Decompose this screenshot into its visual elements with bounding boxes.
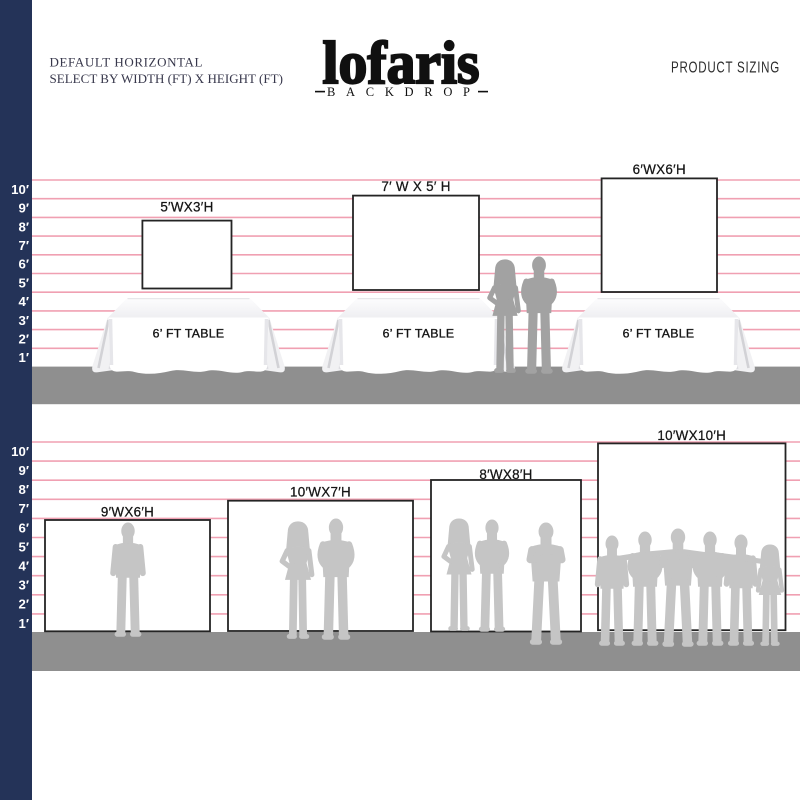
svg-text:SELECT BY WIDTH (FT) X HEIGHT: SELECT BY WIDTH (FT) X HEIGHT (FT) xyxy=(50,71,284,86)
svg-text:DEFAULT HORIZONTAL: DEFAULT HORIZONTAL xyxy=(50,54,204,69)
svg-text:2′: 2′ xyxy=(19,332,30,347)
svg-text:6′: 6′ xyxy=(19,257,30,272)
svg-text:9′: 9′ xyxy=(19,201,30,216)
svg-text:7′ W X 5′ H: 7′ W X 5′ H xyxy=(381,179,450,194)
svg-text:10′: 10′ xyxy=(11,182,29,197)
svg-text:1′: 1′ xyxy=(19,350,30,365)
svg-text:2′: 2′ xyxy=(19,597,30,612)
svg-text:PRODUCT SIZING: PRODUCT SIZING xyxy=(671,60,780,77)
svg-text:9′: 9′ xyxy=(19,463,30,478)
svg-text:8′: 8′ xyxy=(19,482,30,497)
svg-text:5′: 5′ xyxy=(19,539,30,554)
svg-text:6’ FT TABLE: 6’ FT TABLE xyxy=(383,327,455,341)
svg-text:5′: 5′ xyxy=(19,275,30,290)
svg-text:8′: 8′ xyxy=(19,219,30,234)
svg-text:10′: 10′ xyxy=(11,444,29,459)
svg-text:4′: 4′ xyxy=(19,559,30,574)
svg-text:4′: 4′ xyxy=(19,294,30,309)
svg-text:6′WX6′H: 6′WX6′H xyxy=(633,162,686,177)
svg-text:6’ FT TABLE: 6’ FT TABLE xyxy=(623,327,695,341)
svg-text:10′WX7′H: 10′WX7′H xyxy=(290,485,351,500)
svg-text:10′WX10′H: 10′WX10′H xyxy=(657,428,726,443)
svg-text:8′WX8′H: 8′WX8′H xyxy=(479,467,532,482)
svg-text:3′: 3′ xyxy=(19,313,30,328)
svg-text:5′WX3′H: 5′WX3′H xyxy=(160,200,213,215)
svg-text:1′: 1′ xyxy=(19,616,30,631)
svg-text:7′: 7′ xyxy=(19,501,30,516)
svg-text:6’ FT TABLE: 6’ FT TABLE xyxy=(153,327,225,341)
svg-text:9′WX6′H: 9′WX6′H xyxy=(101,504,154,519)
svg-text:3′: 3′ xyxy=(19,578,30,593)
svg-text:6′: 6′ xyxy=(19,520,30,535)
svg-text:7′: 7′ xyxy=(19,238,30,253)
